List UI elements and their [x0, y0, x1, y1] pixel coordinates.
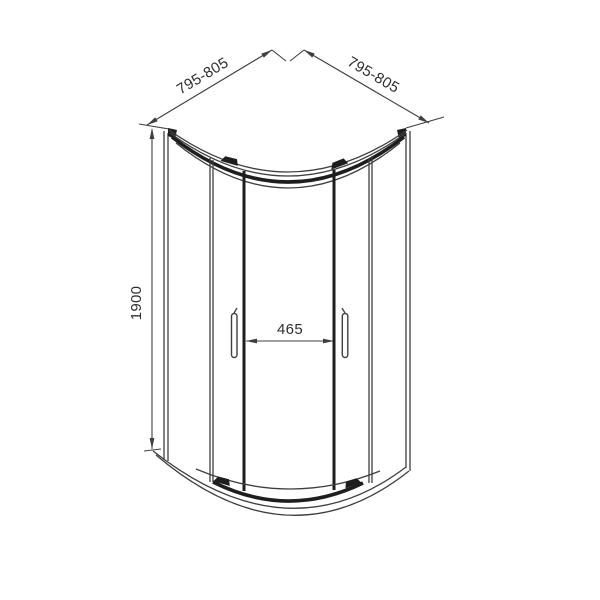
door-handle-left: [232, 314, 238, 358]
left-side-panel: [164, 128, 177, 461]
sliding-door-right: [334, 170, 348, 490]
door-handle-right: [342, 314, 348, 358]
top-rail-outer-curve: [169, 130, 407, 172]
dimension-label-height: 1900: [128, 286, 145, 321]
drawing-canvas: 795-805 795-805 1900 465: [0, 0, 600, 600]
arrowhead-icon: [303, 48, 315, 58]
extension-line: [139, 124, 169, 129]
dimension-width-left: 795-805: [139, 48, 286, 129]
sliding-door-left: [232, 171, 245, 491]
dimension-height: 1900: [128, 128, 161, 451]
extension-line: [290, 50, 304, 61]
extension-line: [144, 449, 161, 451]
dimension-label-door-opening: 465: [277, 321, 303, 338]
arrowhead-icon: [150, 438, 155, 449]
arrowhead-icon: [150, 128, 155, 139]
arrowhead-icon: [261, 48, 273, 58]
extension-line: [406, 117, 444, 128]
fixed-panel-left: [210, 158, 213, 482]
extension-line: [272, 50, 286, 61]
tray-rim-outer-curve: [156, 455, 409, 515]
top-rail-guide-curve: [170, 133, 406, 176]
top-rail: [169, 130, 407, 188]
handle-mount: [342, 308, 345, 313]
handle-mount: [234, 308, 237, 313]
bottom-rail: [153, 451, 409, 515]
arrowhead-icon: [246, 339, 257, 344]
shower-enclosure-technical-drawing: 795-805 795-805 1900 465: [0, 0, 600, 600]
door-roller-left: [221, 154, 240, 166]
arrowhead-icon: [323, 339, 334, 344]
right-side-panel: [397, 128, 410, 471]
dimension-width-right: 795-805: [290, 48, 444, 128]
dimension-door-opening: 465: [246, 321, 334, 343]
fixed-panel-right: [369, 156, 372, 483]
